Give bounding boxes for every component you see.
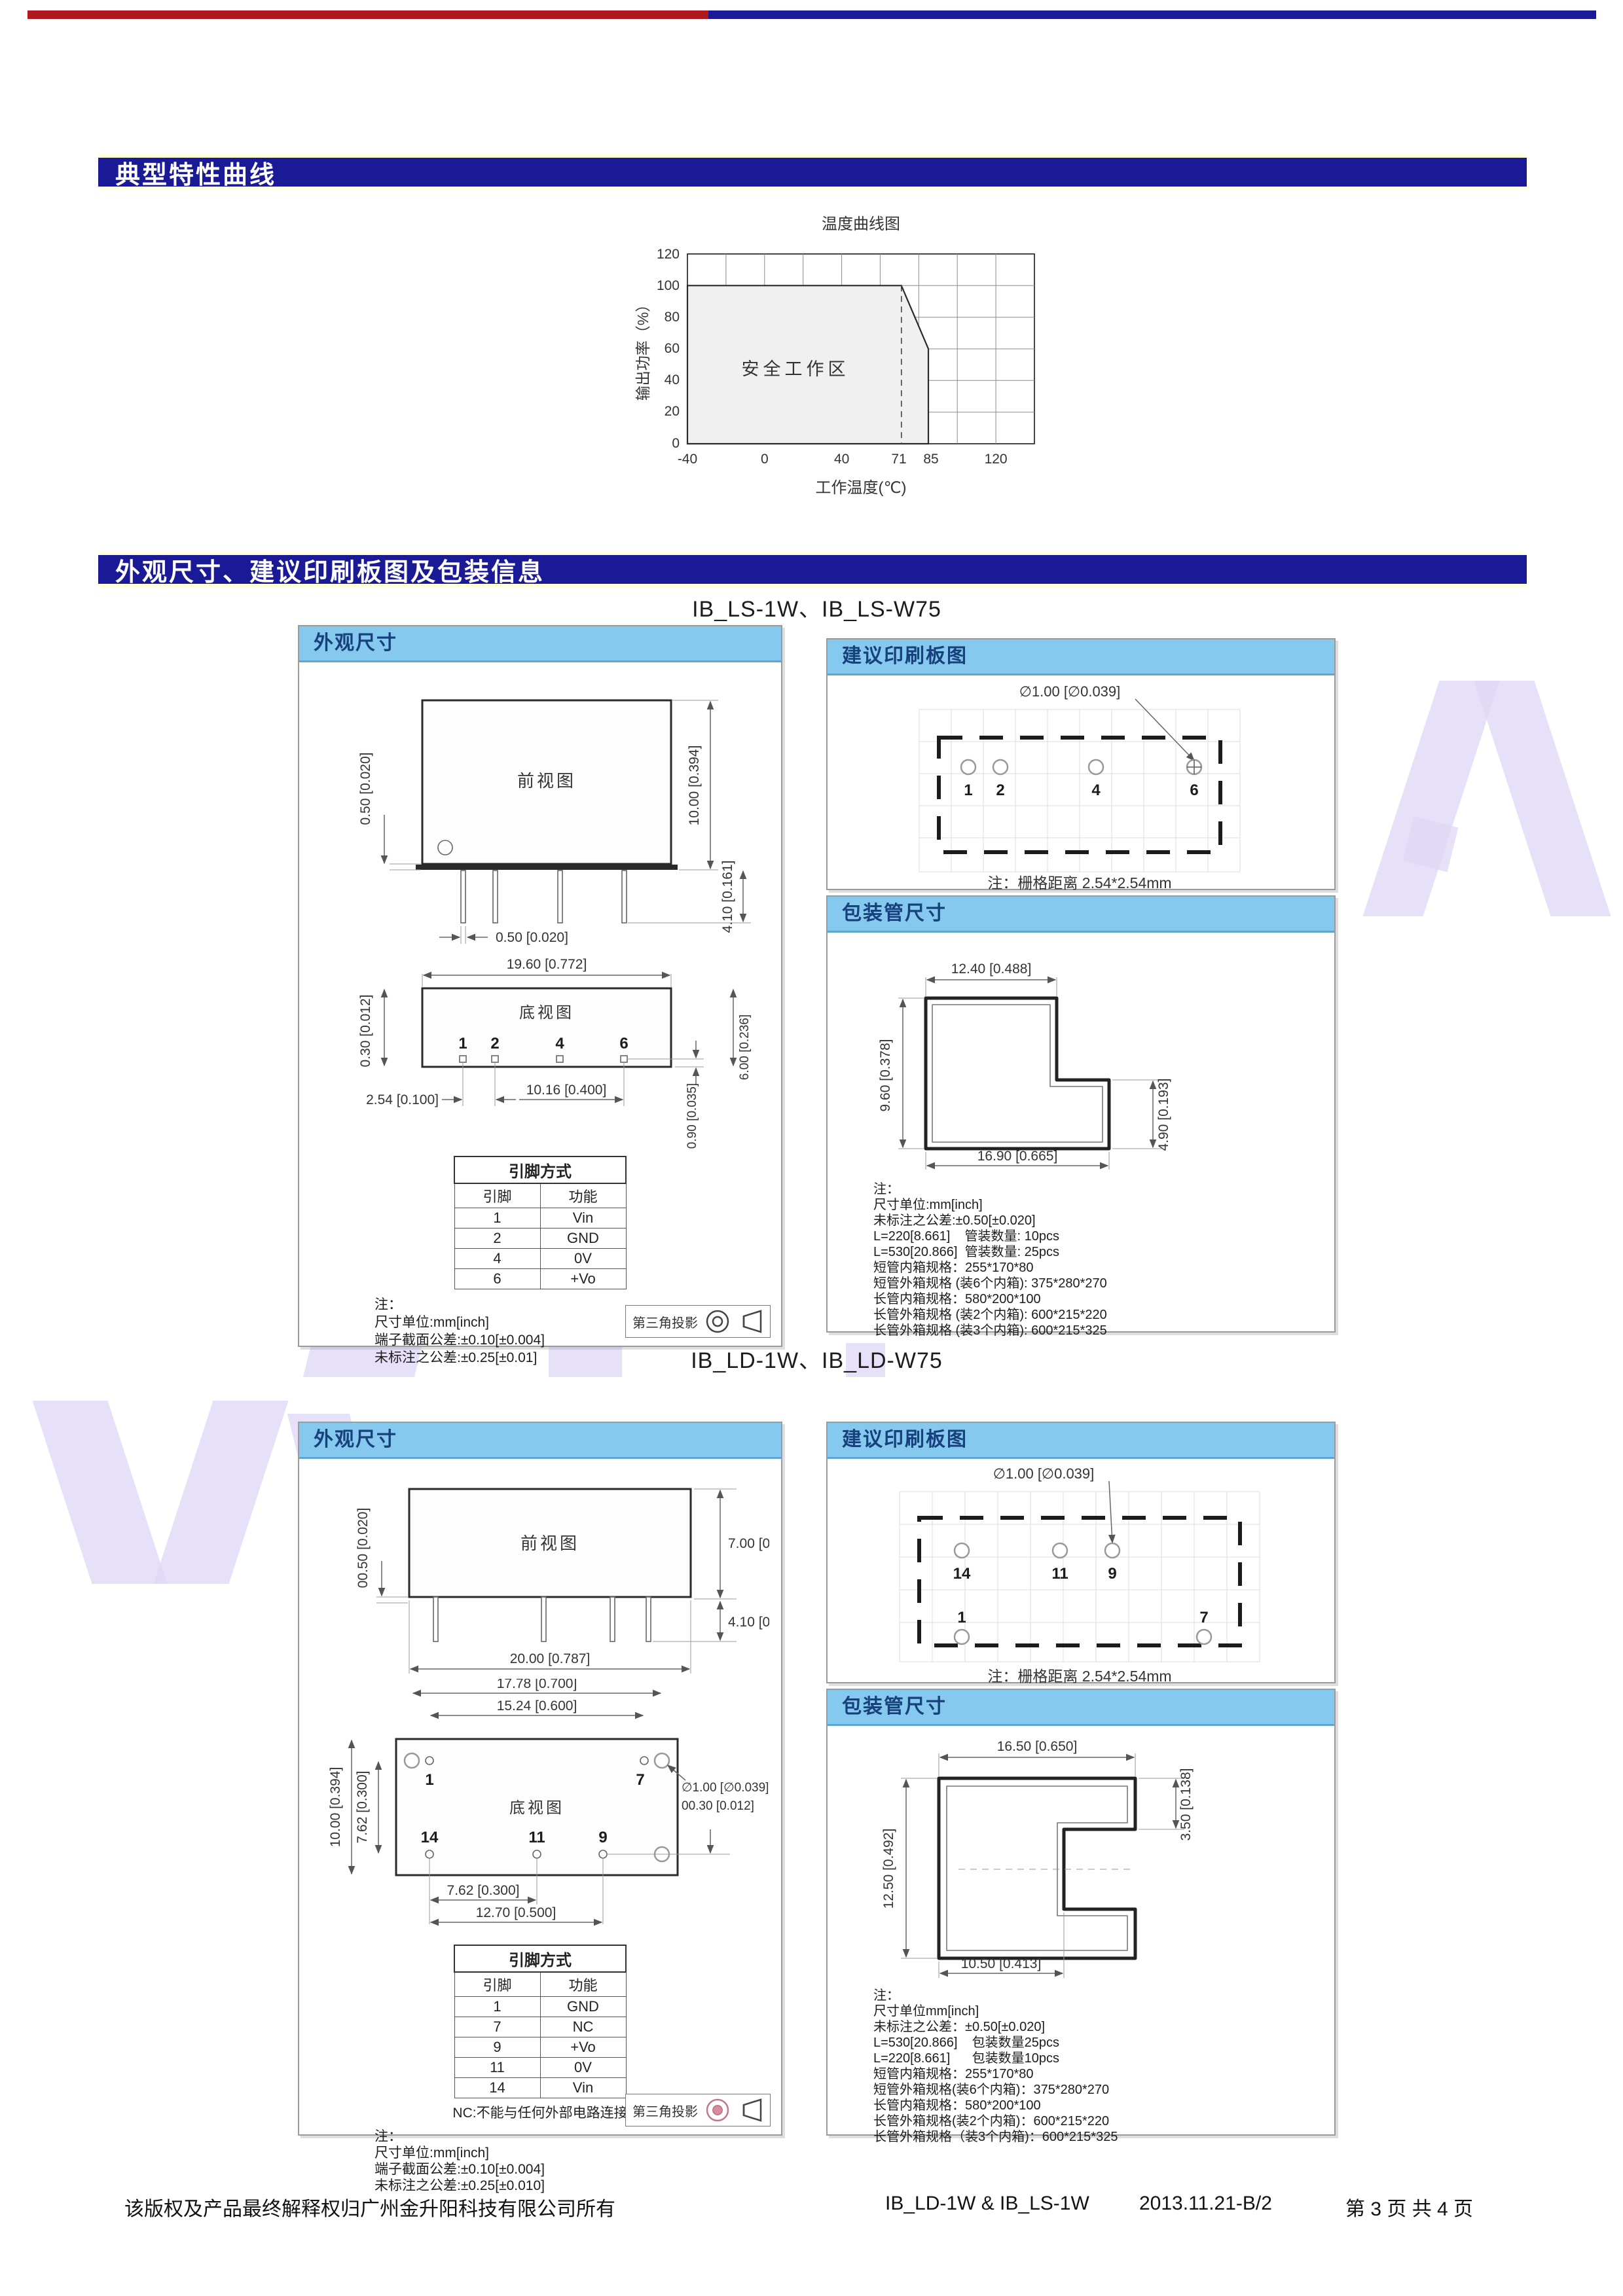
svg-text:6: 6 [619, 1035, 628, 1052]
projection-cone-icon [737, 1310, 763, 1333]
table-row: 7NC [454, 2017, 626, 2037]
ld-tube-drawing: 16.50 [0.650] 3.50 [0.138] 12.50 [0.492]… [828, 1726, 1332, 1981]
section-band-dimensions: 外观尺寸、建议印刷板图及包装信息 [98, 552, 1527, 587]
svg-text:6: 6 [1190, 781, 1198, 799]
ld-front-label: 前视图 [520, 1534, 579, 1553]
ls-tube-dim-right: 4.90 [0.193] [1156, 1079, 1171, 1151]
ls-tube-notes: 注： 尺寸单位:mm[inch] 未标注之公差:±0.50[±0.020] L=… [873, 1181, 1334, 1338]
svg-text:-40: -40 [678, 452, 697, 467]
ld-tube-dim-bottom: 10.50 [0.413] [961, 1956, 1042, 1971]
ls-tube-dim-left: 9.60 [0.378] [878, 1039, 893, 1112]
footer-revision: 2013.11.21-B/2 [1139, 2193, 1272, 2215]
ls-bottom-dim-top: 19.60 [0.772] [507, 957, 587, 972]
svg-text:11: 11 [1051, 1565, 1068, 1583]
ld-bottom-view-drawing: 17.78 [0.700] 15.24 [0.600] 底视图 1 7 14 1… [311, 1679, 769, 1941]
ld-front-dim-left: 00.50 [0.020] [356, 1508, 371, 1588]
svg-text:0: 0 [761, 452, 769, 467]
ld-outline-notes: 注： 尺寸单位:mm[inch] 端子截面公差:±0.10[±0.004] 未标… [374, 2128, 781, 2194]
ls-pcb-panel-title: 建议印刷板图 [828, 639, 1334, 675]
section-band-typical-curves: 典型特性曲线 [98, 154, 1527, 190]
fn-col-header: 功能 [540, 1183, 626, 1208]
pcb-pads: 1 2 4 6 [961, 760, 1201, 799]
svg-text:20: 20 [665, 404, 680, 419]
svg-text:100: 100 [657, 278, 680, 293]
ld-front-pins [433, 1597, 651, 1641]
svg-text:85: 85 [923, 452, 938, 467]
third-angle-projection-stamp: 第三角投影 [625, 2094, 771, 2126]
table-row: 2GND [454, 1229, 626, 1249]
ls-front-view-drawing: 前视图 0.50 [0.020] 10.00 [0.394] 4.10 [0.1… [311, 668, 769, 949]
ld-front-dim-right2: 4.10 [0.161] [728, 1615, 769, 1630]
ls-pcb-note: 注：栅格距离 2.54*2.54mm [987, 874, 1171, 891]
ld-tube-dim-top: 16.50 [0.650] [997, 1739, 1078, 1754]
ls-tube-dim-bottom: 16.90 [0.665] [977, 1149, 1058, 1164]
table-row: 9+Vo [454, 2037, 626, 2058]
svg-text:0: 0 [672, 436, 680, 451]
ld-front-dim-bottom: 20.00 [0.787] [510, 1651, 591, 1666]
y-axis-label: 输出功率（%） [634, 297, 651, 401]
third-angle-projection-stamp: 第三角投影 [625, 1305, 771, 1338]
watermark-shape [33, 1401, 168, 1584]
band-title: 外观尺寸、建议印刷板图及包装信息 [115, 559, 545, 586]
svg-text:14: 14 [421, 1829, 439, 1846]
svg-text:60: 60 [665, 341, 680, 356]
x-axis-label: 工作温度(℃) [816, 479, 907, 497]
footer-copyright: 该版权及产品最终解释权归广州金升阳科技有限公司所有 [124, 2193, 615, 2221]
ld-dim-b2: 12.70 [0.500] [476, 1905, 556, 1920]
ld-dim-1778: 17.78 [0.700] [497, 1679, 577, 1691]
svg-text:11: 11 [528, 1829, 545, 1846]
svg-text:9: 9 [598, 1829, 607, 1846]
ld-dim-left-outer: 10.00 [0.394] [328, 1767, 343, 1848]
table-row: 40V [454, 1249, 626, 1269]
ld-outline-panel: 外观尺寸 前视图 00.50 [0.020] 7.00 [0.276] 4.10… [298, 1422, 782, 2136]
svg-text:9: 9 [1108, 1565, 1116, 1583]
watermark-shape [1474, 681, 1611, 916]
safe-area-label: 安全工作区 [742, 359, 850, 379]
ls-pcb-panel: 建议印刷板图 ∅1.00 [∅0.039] 1 [826, 638, 1336, 890]
ls-bottom-label: 底视图 [519, 1004, 574, 1022]
ld-outline-panel-title: 外观尺寸 [299, 1423, 781, 1459]
pin-table-title: 引脚方式 [454, 1945, 626, 1972]
table-row: 110V [454, 2058, 626, 2078]
table-row: 1Vin [454, 1208, 626, 1229]
svg-text:7: 7 [636, 1771, 644, 1789]
table-row: 6+Vo [454, 1269, 626, 1289]
ls-front-label: 前视图 [517, 771, 576, 791]
pin-col-header: 引脚 [454, 1972, 540, 1997]
watermark-shape [154, 1401, 289, 1584]
watermark-shape [1363, 681, 1500, 916]
ls-pcb-drawing: ∅1.00 [∅0.039] 1 2 4 6 注：栅格距离 2.54*2.54m… [828, 675, 1332, 891]
svg-text:40: 40 [834, 452, 849, 467]
table-row: 14Vin [454, 2078, 626, 2098]
projection-cone-icon [737, 2098, 763, 2122]
ls-tube-panel-title: 包装管尺寸 [828, 897, 1334, 933]
footer-page-number: 第 3 页 共 4 页 [1345, 2193, 1473, 2221]
ls-front-dim-right2: 4.10 [0.161] [720, 861, 735, 933]
svg-text:1: 1 [957, 1609, 966, 1626]
ld-front-view-drawing: 前视图 00.50 [0.020] 7.00 [0.276] 4.10 [0.1… [311, 1463, 769, 1679]
ld-hole-dia-label: ∅1.00 [∅0.039] [682, 1781, 769, 1795]
ls-pin-table: 引脚方式 引脚 功能 1Vin 2GND 40V 6+Vo [454, 1156, 627, 1289]
ld-pcb-panel-title: 建议印刷板图 [828, 1423, 1334, 1459]
svg-text:4: 4 [1091, 781, 1101, 799]
svg-text:1: 1 [964, 781, 972, 799]
ld-bottom-label: 底视图 [509, 1799, 564, 1817]
svg-text:80: 80 [665, 310, 680, 325]
ls-front-dim-right1: 10.00 [0.394] [687, 745, 702, 826]
y-tick-labels: 120 100 80 60 40 20 0 [657, 247, 680, 451]
ld-pcb-hole-label: ∅1.00 [∅0.039] [993, 1465, 1095, 1482]
ld-pcb-drawing: ∅1.00 [∅0.039] 14 11 9 1 7 注：栅格距离 2.54*2… [828, 1459, 1332, 1685]
ls-pcb-hole-label: ∅1.00 [∅0.039] [1019, 683, 1121, 700]
ls-tube-dim-top: 12.40 [0.488] [951, 961, 1032, 977]
ld-dim-left-inner: 7.62 [0.300] [355, 1771, 370, 1844]
ld-tube-dim-left: 12.50 [0.492] [881, 1829, 896, 1909]
ld-tube-panel: 包装管尺寸 16.50 [0.650] 3.50 [0.138] 12.50 [… [826, 1689, 1336, 2136]
ls-tube-drawing: 12.40 [0.488] 9.60 [0.378] 4.90 [0.193] … [828, 933, 1332, 1175]
ls-section-title: IB_LS-1W、IB_LS-W75 [298, 591, 1336, 623]
pin-col-header: 引脚 [454, 1183, 540, 1208]
ls-front-dim-bottom: 0.50 [0.020] [496, 930, 568, 945]
ld-section-title: IB_LD-1W、IB_LD-W75 [298, 1342, 1336, 1374]
ls-front-dim-left: 0.50 [0.020] [358, 753, 373, 825]
ld-dim-1524: 15.24 [0.600] [497, 1698, 577, 1713]
ls-outline-panel: 外观尺寸 前视图 0.50 [0.020] 10.00 [0.394] [298, 625, 782, 1347]
band-title: 典型特性曲线 [115, 162, 276, 189]
x-tick-labels: -40 0 40 71 85 120 [678, 452, 1008, 467]
table-row: 1GND [454, 1997, 626, 2017]
ld-pcb-panel: 建议印刷板图 ∅1.00 [∅0.039] 14 11 9 1 [826, 1422, 1336, 1683]
svg-text:1: 1 [458, 1035, 467, 1052]
fn-col-header: 功能 [540, 1972, 626, 1997]
pcb-pads: 14 11 9 1 7 [953, 1543, 1211, 1644]
ld-tube-dim-right: 3.50 [0.138] [1178, 1768, 1194, 1841]
ld-tube-panel-title: 包装管尺寸 [828, 1690, 1334, 1726]
ld-tube-notes: 注： 尺寸单位mm[inch] 未标注之公差：±0.50[±0.020] L=5… [873, 1988, 1334, 2145]
derating-chart: 温度曲线图 安全工作区 [629, 208, 1061, 519]
ls-bottom-dim-b2: 10.16 [0.400] [526, 1083, 607, 1098]
top-stripe-blue [708, 10, 1596, 19]
svg-text:14: 14 [953, 1565, 971, 1583]
projection-circles-icon [704, 1308, 731, 1335]
svg-text:2: 2 [996, 781, 1004, 799]
svg-text:2: 2 [490, 1035, 499, 1052]
svg-text:71: 71 [891, 452, 906, 467]
ls-outline-panel-title: 外观尺寸 [299, 626, 781, 662]
svg-text:120: 120 [657, 247, 680, 262]
ld-front-dim-right1: 7.00 [0.276] [728, 1536, 769, 1551]
ld-pcb-note: 注：栅格距离 2.54*2.54mm [987, 1668, 1171, 1685]
ls-bottom-dim-b1: 2.54 [0.100] [366, 1092, 439, 1107]
pin-table-title: 引脚方式 [454, 1157, 626, 1183]
ls-bottom-view-drawing: 19.60 [0.772] 底视图 1 2 4 6 0.30 [0.012] [311, 949, 769, 1152]
chart-title: 温度曲线图 [822, 215, 900, 233]
ls-tube-panel: 包装管尺寸 12.40 [0.488] 9.60 [0.378] 4.90 [0… [826, 895, 1336, 1333]
ld-standoff-label: 00.30 [0.012] [682, 1799, 754, 1813]
svg-text:7: 7 [1199, 1609, 1208, 1626]
top-stripe-red [27, 10, 708, 19]
ld-dim-b1: 7.62 [0.300] [447, 1883, 520, 1898]
ls-bottom-dim-r1: 0.90 [0.035] [685, 1083, 699, 1149]
ld-pin-table: 引脚方式 引脚 功能 1GND 7NC 9+Vo 110V 14Vin [454, 1945, 627, 2098]
svg-text:120: 120 [985, 452, 1008, 467]
projection-circles-icon [704, 2097, 731, 2123]
svg-text:4: 4 [555, 1035, 564, 1052]
datasheet-page: 典型特性曲线 温度曲线图 [0, 0, 1623, 2296]
ls-bottom-dim-left: 0.30 [0.012] [358, 995, 373, 1067]
footer-model: IB_LD-1W & IB_LS-1W [885, 2193, 1089, 2215]
derating-chart-svg: 温度曲线图 安全工作区 [629, 208, 1061, 516]
svg-text:40: 40 [665, 372, 680, 387]
ls-bottom-dim-r2: 6.00 [0.236] [738, 1014, 752, 1080]
ls-front-pins [461, 870, 627, 923]
svg-text:1: 1 [425, 1771, 433, 1789]
